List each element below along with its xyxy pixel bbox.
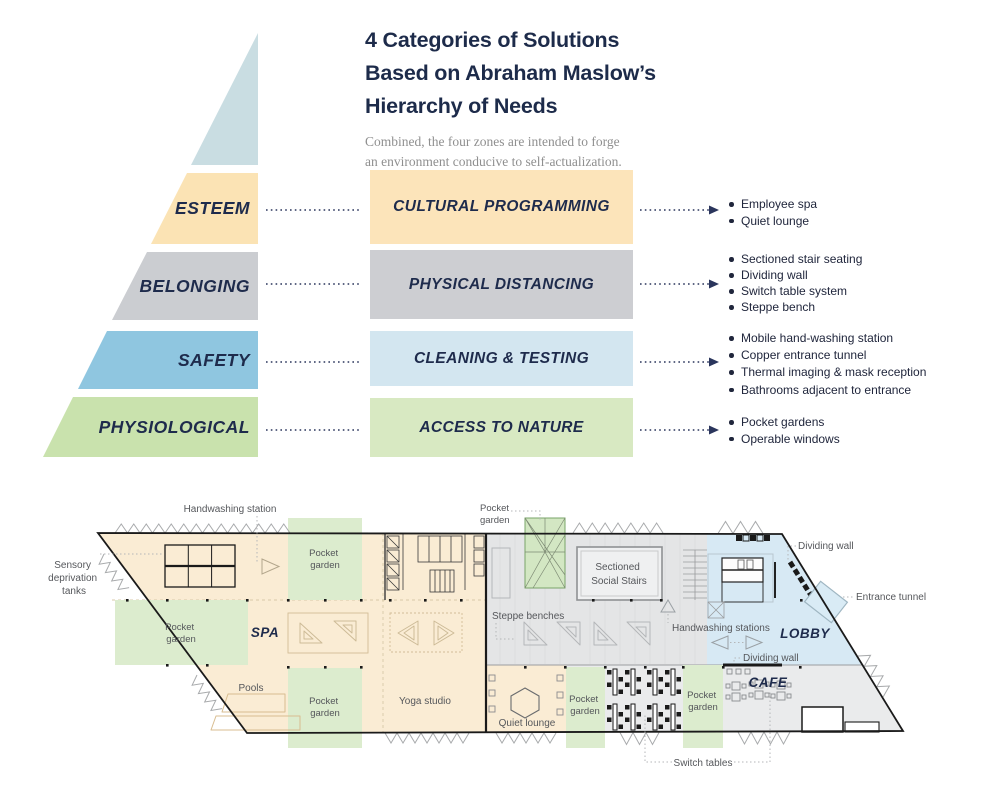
infographic-page: ESTEEM BELONGING SAFETY PHYSIOLOGICAL 4 … xyxy=(0,0,1000,786)
plan-label-pocket-garden-5: Pocket garden xyxy=(569,694,601,717)
plan-label-entrance-tunnel: Entrance tunnel xyxy=(856,592,926,603)
page-subtitle: Combined, the four zones are intended to… xyxy=(365,132,695,172)
plan-label-dividing-wall-2: Dividing wall xyxy=(743,653,799,664)
bullet-list-cultural: Employee spa Quiet lounge xyxy=(728,196,996,229)
floor-plan: Handwashing station Sensory deprivation … xyxy=(0,480,1000,786)
list-item: Pocket gardens xyxy=(728,414,996,431)
title-line-3: Hierarchy of Needs xyxy=(365,90,695,123)
solution-box-access-nature: ACCESS TO NATURE xyxy=(370,398,633,457)
solution-box-physical-distancing: PHYSICAL DISTANCING xyxy=(370,250,633,319)
plan-label-handwashing-stations: Handwashing stations xyxy=(672,623,770,634)
page-title: 4 Categories of Solutions Based on Abrah… xyxy=(365,24,695,123)
plan-label-pocket-garden-1: Pocket garden xyxy=(309,548,341,571)
zone-label-spa: SPA xyxy=(251,625,279,640)
box-to-list-arrows xyxy=(640,206,719,435)
bullet-list-cleaning: Mobile hand-washing station Copper entra… xyxy=(728,330,996,399)
pyramid-apex-shape xyxy=(191,33,258,165)
solution-box-label: CULTURAL PROGRAMMING xyxy=(393,198,610,216)
list-item: Steppe bench xyxy=(728,299,996,315)
title-line-1: 4 Categories of Solutions xyxy=(365,24,695,57)
list-item: Copper entrance tunnel xyxy=(728,347,996,364)
list-item: Operable windows xyxy=(728,431,996,448)
plan-label-pocket-garden-4: Pocket garden xyxy=(480,503,512,526)
plan-label-switch-tables: Switch tables xyxy=(674,758,733,769)
list-item: Switch table system xyxy=(728,283,996,299)
subtitle-line-2: an environment conducive to self-actuali… xyxy=(365,152,695,172)
plan-label-pocket-garden-2: Pocket garden xyxy=(165,622,197,645)
plan-label-pools: Pools xyxy=(238,683,263,694)
solution-box-label: CLEANING & TESTING xyxy=(414,350,589,368)
list-item: Employee spa xyxy=(728,196,996,213)
plan-label-pocket-garden-6: Pocket garden xyxy=(687,690,719,713)
header: 4 Categories of Solutions Based on Abrah… xyxy=(365,24,695,172)
solution-box-cultural-programming: CULTURAL PROGRAMMING xyxy=(370,170,633,244)
plan-label-dividing-wall-1: Dividing wall xyxy=(798,541,854,552)
pyramid-label-belonging: BELONGING xyxy=(140,276,250,296)
plan-label-steppe-benches: Steppe benches xyxy=(492,611,564,622)
pyramid-label-safety: SAFETY xyxy=(178,350,251,370)
solution-box-cleaning-testing: CLEANING & TESTING xyxy=(370,331,633,386)
plan-label-handwashing-station: Handwashing station xyxy=(184,504,277,515)
pyramid-label-esteem: ESTEEM xyxy=(175,198,250,218)
list-item: Thermal imaging & mask reception xyxy=(728,364,996,381)
list-item: Bathrooms adjacent to entrance xyxy=(728,382,996,399)
plan-label-yoga-studio: Yoga studio xyxy=(399,696,451,707)
plan-label-quiet-lounge: Quiet lounge xyxy=(499,718,556,729)
pocket-garden-1 xyxy=(288,518,362,600)
title-line-2: Based on Abraham Maslow’s xyxy=(365,57,695,90)
pyramid-label-physiological: PHYSIOLOGICAL xyxy=(99,417,250,437)
social-stairs-box xyxy=(577,547,662,600)
list-item: Mobile hand-washing station xyxy=(728,330,996,347)
pyramid-to-box-connectors xyxy=(266,210,362,430)
list-item: Dividing wall xyxy=(728,267,996,283)
bullet-list-nature: Pocket gardens Operable windows xyxy=(728,414,996,447)
subtitle-line-1: Combined, the four zones are intended to… xyxy=(365,132,695,152)
bullet-list-distancing: Sectioned stair seating Dividing wall Sw… xyxy=(728,251,996,315)
list-item: Quiet lounge xyxy=(728,213,996,230)
zone-label-cafe: CAFE xyxy=(749,675,788,690)
list-item: Sectioned stair seating xyxy=(728,251,996,267)
zone-label-lobby: LOBBY xyxy=(780,626,831,641)
plan-label-sensory-tanks: Sensory deprivation tanks xyxy=(48,560,100,597)
plan-label-pocket-garden-3: Pocket garden xyxy=(309,696,341,719)
solution-box-label: PHYSICAL DISTANCING xyxy=(409,276,594,294)
solution-box-label: ACCESS TO NATURE xyxy=(419,419,583,437)
